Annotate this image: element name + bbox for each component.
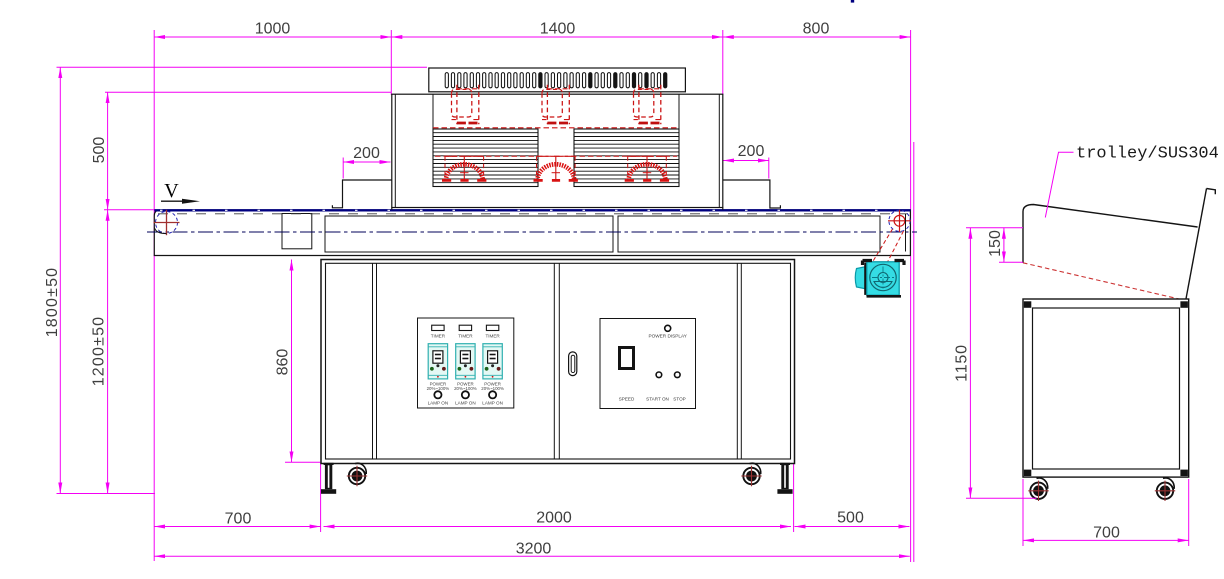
svg-text:START ON: START ON — [646, 396, 669, 401]
svg-text:860: 860 — [275, 349, 292, 376]
svg-text:20%~100%: 20%~100% — [427, 386, 450, 391]
svg-text:1800±50: 1800±50 — [44, 267, 61, 338]
svg-text:700: 700 — [1093, 525, 1120, 542]
svg-text:POWER DISPLAY: POWER DISPLAY — [648, 334, 687, 339]
svg-text:TIMER: TIMER — [431, 334, 446, 339]
svg-text:150: 150 — [987, 230, 1004, 257]
svg-text:3200: 3200 — [516, 541, 552, 558]
svg-text:200: 200 — [738, 143, 765, 160]
svg-text:800: 800 — [803, 21, 830, 38]
svg-text:500: 500 — [91, 137, 108, 164]
svg-text:STOP: STOP — [673, 396, 685, 401]
svg-text:2000: 2000 — [536, 510, 572, 527]
svg-text:20%~100%: 20%~100% — [481, 386, 504, 391]
svg-text:V: V — [164, 180, 179, 202]
svg-text:SPEED: SPEED — [619, 396, 635, 401]
svg-text:1400: 1400 — [540, 21, 576, 38]
svg-text:1000: 1000 — [255, 21, 291, 38]
svg-text:700: 700 — [225, 511, 252, 528]
svg-text:TIMER: TIMER — [485, 334, 500, 339]
svg-text:1200±50: 1200±50 — [91, 316, 108, 387]
svg-text:LAMP ON: LAMP ON — [428, 401, 449, 406]
svg-text:200: 200 — [353, 145, 380, 162]
svg-text:trolley/SUS304: trolley/SUS304 — [1076, 145, 1219, 164]
svg-text:LAMP ON: LAMP ON — [455, 401, 476, 406]
svg-text:20%~100%: 20%~100% — [454, 386, 477, 391]
svg-text:LAMP ON: LAMP ON — [482, 401, 503, 406]
svg-text:1150: 1150 — [954, 344, 971, 382]
svg-text:TIMER: TIMER — [458, 334, 473, 339]
svg-text:500: 500 — [837, 510, 864, 527]
